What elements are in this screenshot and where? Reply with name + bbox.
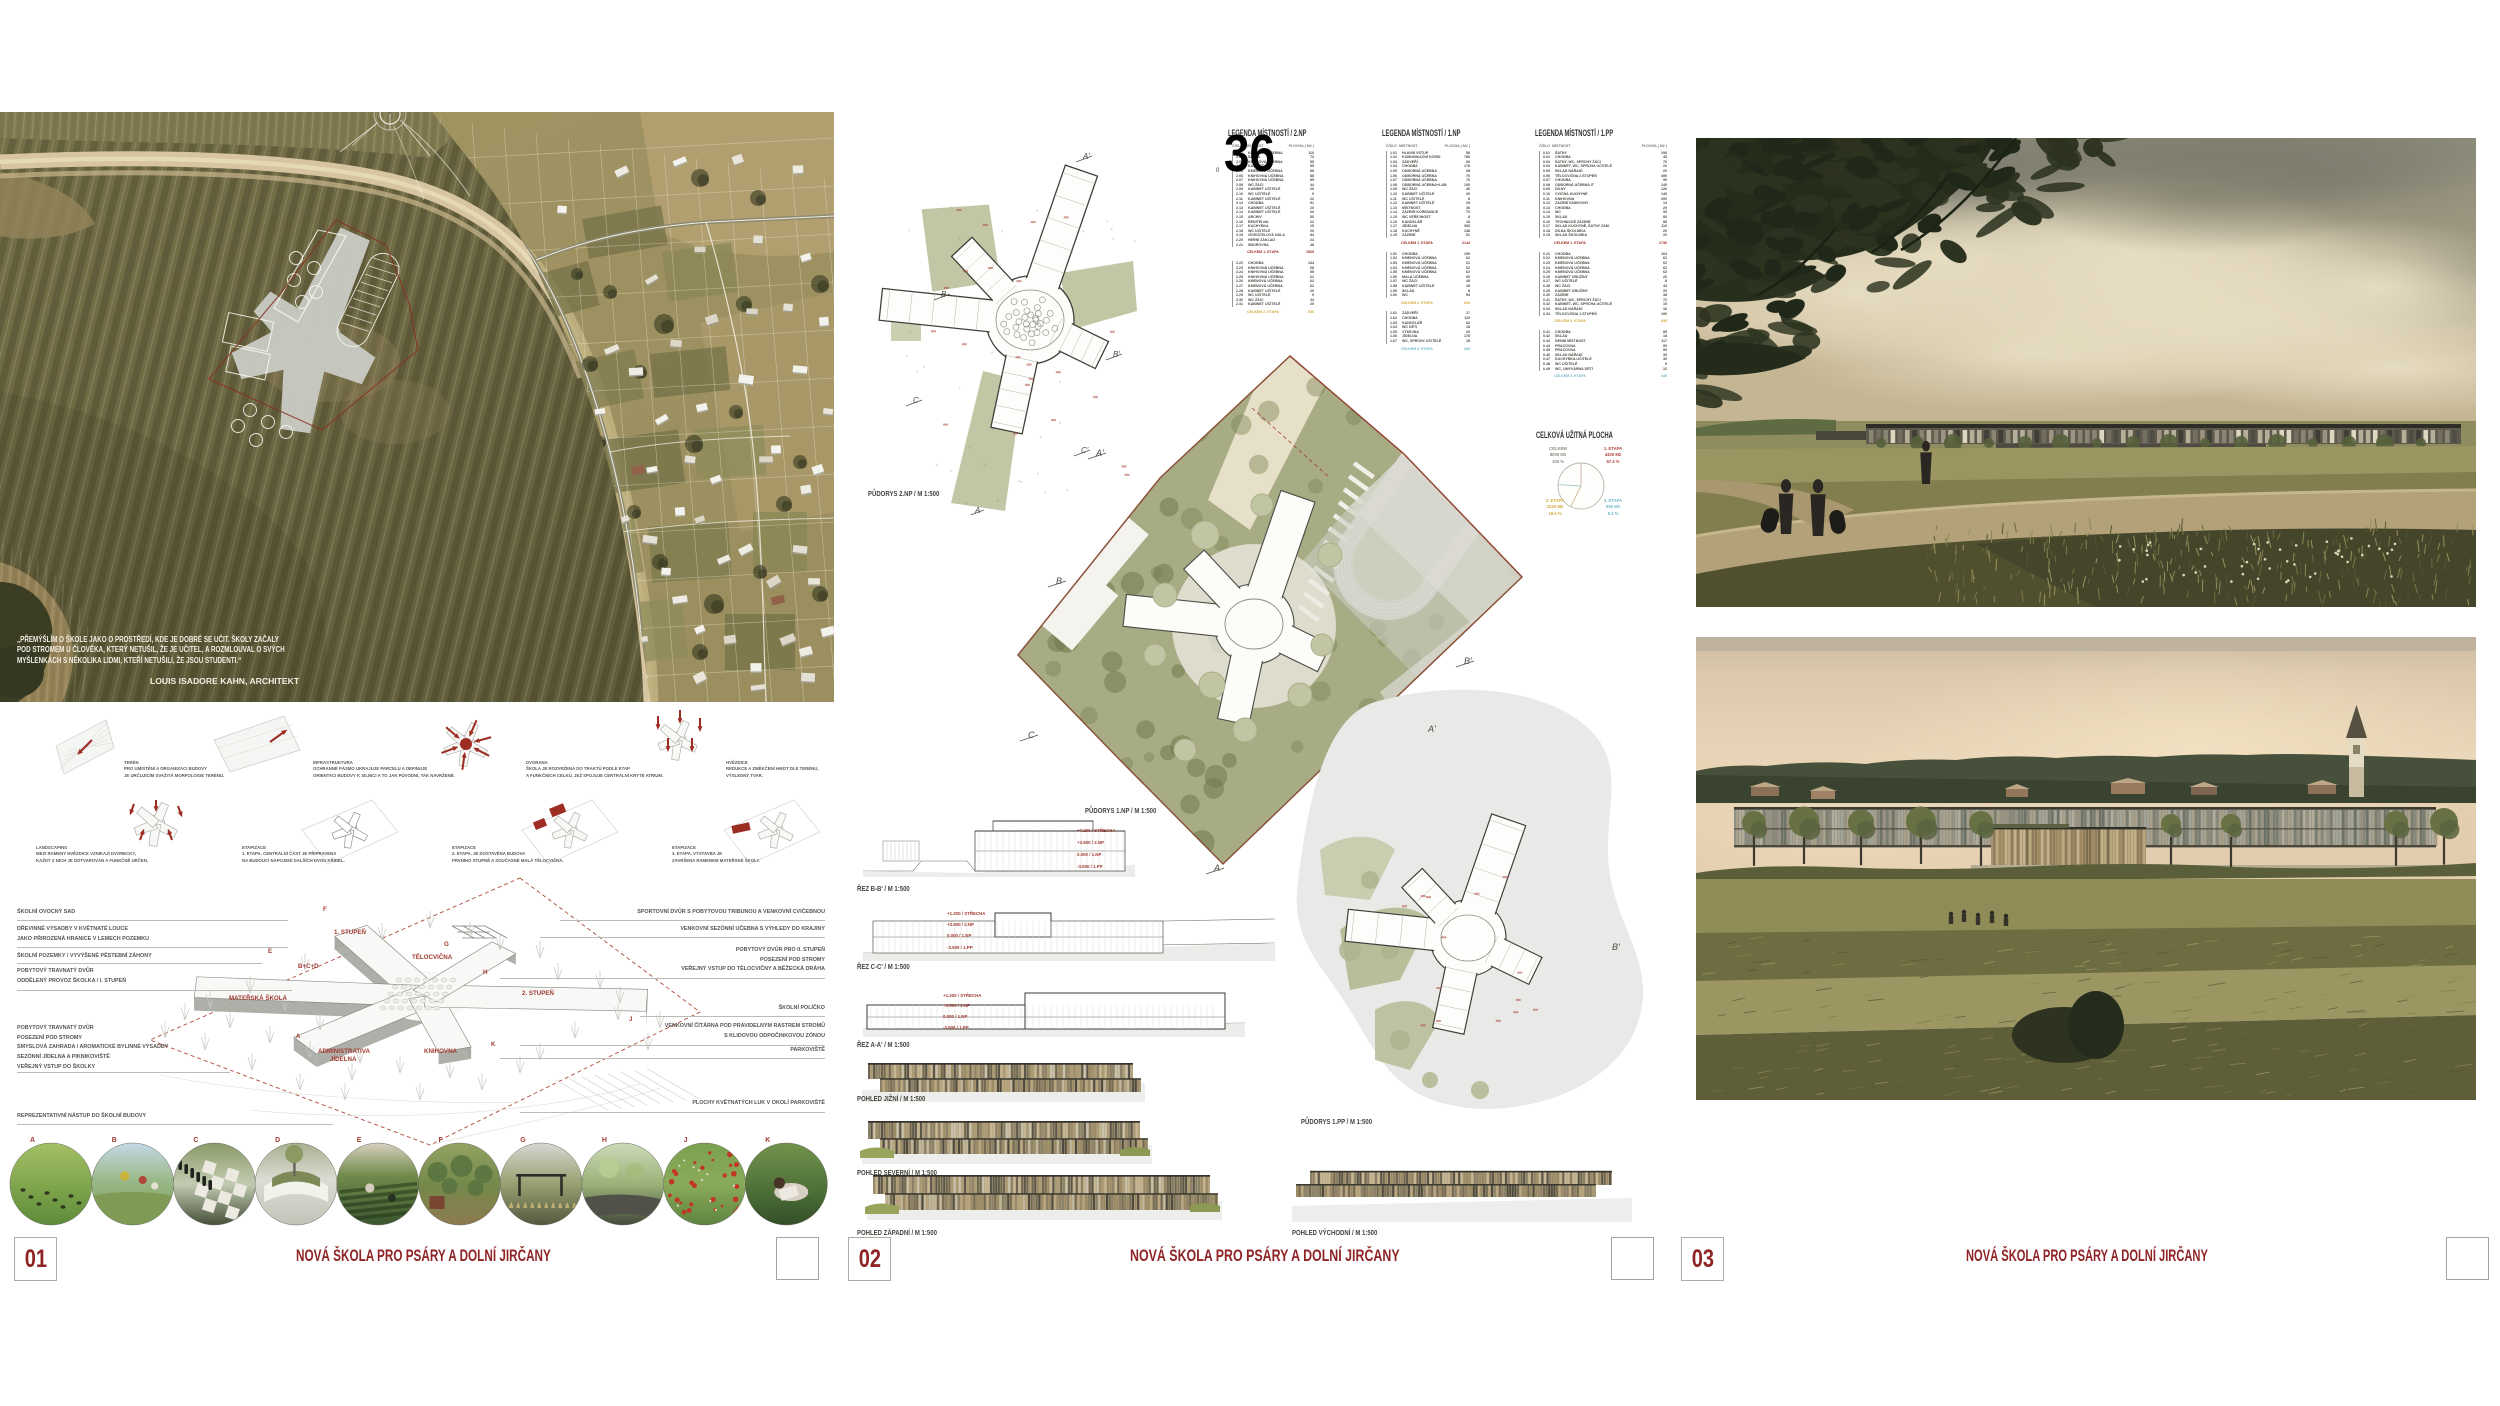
svg-text:E: E <box>357 1137 362 1144</box>
svg-text:J: J <box>684 1137 688 1144</box>
svg-text:C: C <box>913 396 919 405</box>
svg-text:H: H <box>602 1137 607 1144</box>
svg-text:+3.500 / 2.NP: +3.500 / 2.NP <box>947 922 974 927</box>
svg-text:K: K <box>765 1137 770 1144</box>
svg-text:F: F <box>439 1137 444 1144</box>
svg-text:+3.500 / 2.NP: +3.500 / 2.NP <box>1077 840 1104 845</box>
svg-text:B: B <box>941 290 947 299</box>
svg-text:B: B <box>1056 576 1062 586</box>
svg-text:-3.500 / 1.PP: -3.500 / 1.PP <box>1077 864 1103 869</box>
svg-text:0.000 / 1.NP: 0.000 / 1.NP <box>943 1014 967 1019</box>
svg-text:0.000 / 1.NP: 0.000 / 1.NP <box>947 933 971 938</box>
svg-text:C: C <box>1028 730 1035 740</box>
svg-text:+7.200 / STŘECHA: +7.200 / STŘECHA <box>1077 828 1116 833</box>
svg-text:A': A' <box>1427 724 1436 734</box>
svg-text:C: C <box>193 1137 198 1144</box>
svg-text:A: A <box>30 1137 35 1144</box>
svg-text:-3.500 / 1.PP: -3.500 / 1.PP <box>947 945 973 950</box>
svg-text:+3.500 / 2.NP: +3.500 / 2.NP <box>943 1003 970 1008</box>
svg-text:-3.500 / 1.PP: -3.500 / 1.PP <box>943 1025 969 1030</box>
svg-text:G: G <box>520 1137 526 1144</box>
svg-text:+1.200 / STŘECHA: +1.200 / STŘECHA <box>947 911 986 916</box>
svg-text:D: D <box>275 1137 280 1144</box>
svg-text:+1.200 / STŘECHA: +1.200 / STŘECHA <box>943 993 982 998</box>
svg-text:B: B <box>112 1137 117 1144</box>
svg-text:0.000 / 1.NP: 0.000 / 1.NP <box>1077 852 1101 857</box>
